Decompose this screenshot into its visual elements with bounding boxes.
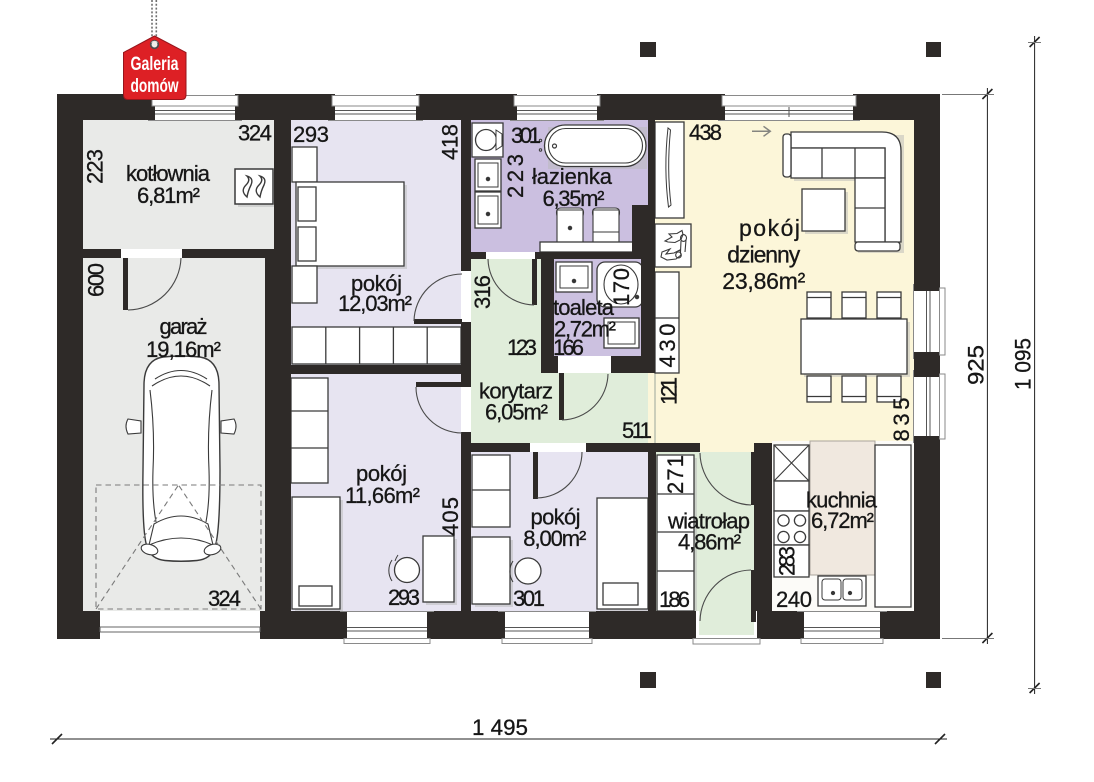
svg-text:12,03m²: 12,03m²	[338, 291, 412, 316]
svg-text:324: 324	[208, 586, 241, 611]
svg-text:925: 925	[964, 345, 989, 385]
svg-text:223: 223	[83, 149, 108, 184]
svg-text:1 095: 1 095	[1011, 338, 1036, 390]
svg-text:domów: domów	[131, 76, 179, 97]
svg-text:123: 123	[507, 335, 537, 360]
svg-text:19,16m²: 19,16m²	[146, 337, 221, 362]
svg-text:2,72m²: 2,72m²	[554, 317, 616, 342]
svg-text:1 495: 1 495	[472, 715, 528, 740]
svg-text:6,35m²: 6,35m²	[543, 186, 605, 211]
svg-text:293: 293	[388, 585, 420, 610]
svg-text:271: 271	[663, 455, 688, 494]
svg-text:121: 121	[657, 377, 682, 405]
svg-text:4,86m²: 4,86m²	[678, 530, 741, 555]
svg-text:511: 511	[622, 418, 652, 443]
svg-text:186: 186	[659, 587, 690, 612]
svg-text:6,81m²: 6,81m²	[137, 183, 200, 208]
svg-text:301: 301	[511, 123, 541, 148]
svg-text:324: 324	[238, 121, 272, 146]
svg-text:283: 283	[775, 546, 800, 576]
svg-text:316: 316	[470, 275, 495, 309]
svg-text:Galeria: Galeria	[131, 54, 179, 75]
svg-text:dzienny: dzienny	[727, 242, 801, 268]
svg-text:23,86m²: 23,86m²	[722, 268, 805, 294]
svg-text:8,00m²: 8,00m²	[523, 526, 586, 551]
svg-text:418: 418	[438, 124, 463, 160]
svg-text:835: 835	[889, 398, 914, 442]
svg-text:301: 301	[513, 586, 545, 611]
svg-text:430: 430	[655, 324, 680, 368]
svg-text:223: 223	[503, 154, 528, 198]
svg-text:293: 293	[293, 122, 329, 147]
svg-text:438: 438	[689, 120, 722, 145]
svg-text:6,05m²: 6,05m²	[485, 400, 548, 425]
svg-text:pokój: pokój	[739, 215, 800, 241]
svg-text:11,66m²: 11,66m²	[345, 483, 420, 508]
svg-text:6,72m²: 6,72m²	[811, 508, 874, 533]
svg-text:600: 600	[84, 263, 109, 297]
svg-text:garaż: garaż	[160, 314, 208, 339]
svg-text:405: 405	[438, 497, 463, 536]
svg-text:240: 240	[776, 587, 812, 612]
